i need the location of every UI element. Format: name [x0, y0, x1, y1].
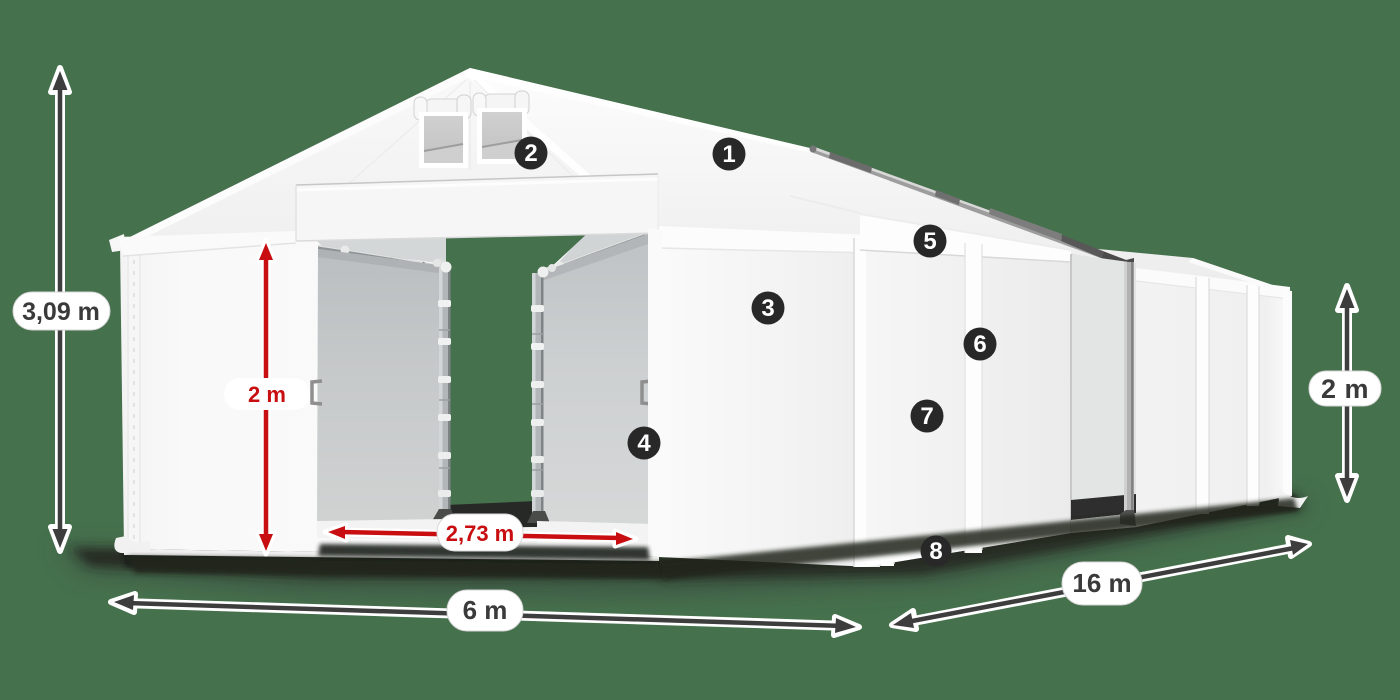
svg-text:2,73 m: 2,73 m [446, 521, 515, 546]
svg-text:2 m: 2 m [248, 382, 286, 407]
svg-text:3,09 m: 3,09 m [22, 298, 100, 326]
svg-text:8: 8 [929, 538, 942, 565]
svg-text:2 m: 2 m [1321, 374, 1369, 404]
svg-text:3: 3 [761, 295, 774, 322]
svg-text:4: 4 [637, 430, 651, 457]
svg-text:6 m: 6 m [463, 595, 508, 625]
svg-text:16 m: 16 m [1072, 568, 1131, 598]
svg-text:1: 1 [722, 141, 735, 168]
svg-text:7: 7 [920, 403, 933, 430]
svg-text:6: 6 [973, 331, 986, 358]
svg-text:2: 2 [524, 140, 537, 167]
svg-text:5: 5 [923, 228, 936, 255]
